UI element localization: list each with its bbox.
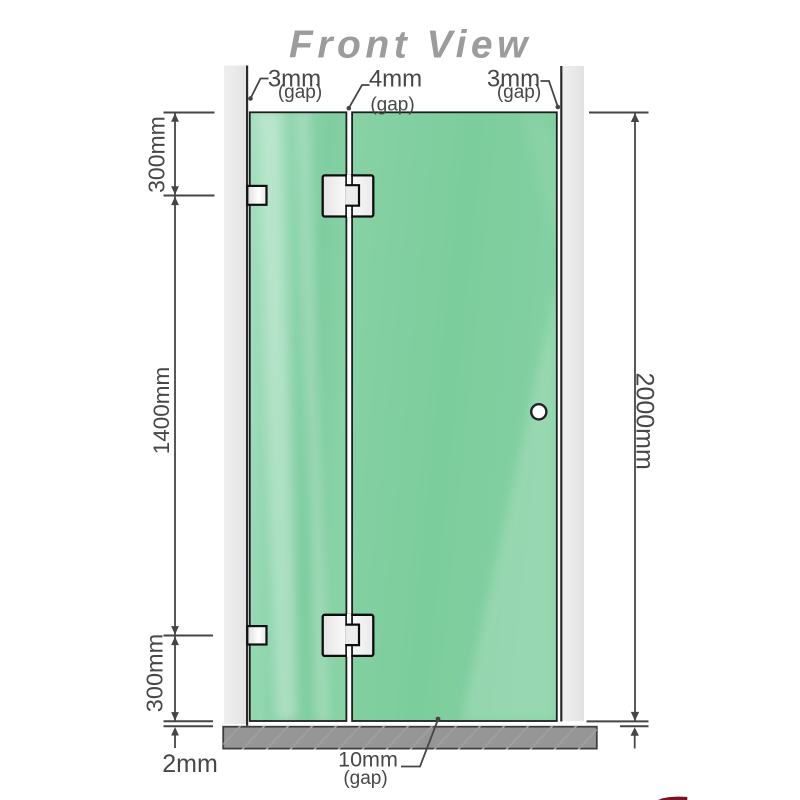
svg-text:2000mm: 2000mm <box>630 373 658 470</box>
svg-text:300mm: 300mm <box>142 634 168 712</box>
svg-text:(gap): (gap) <box>497 82 541 103</box>
svg-text:Front View: Front View <box>289 24 532 67</box>
svg-text:(gap): (gap) <box>370 95 414 116</box>
svg-text:(gap): (gap) <box>278 82 322 103</box>
svg-text:1400mm: 1400mm <box>149 367 174 455</box>
svg-text:2mm: 2mm <box>162 750 218 778</box>
svg-text:(gap): (gap) <box>343 768 387 789</box>
svg-text:4mm: 4mm <box>369 65 422 92</box>
svg-text:300mm: 300mm <box>144 116 170 193</box>
